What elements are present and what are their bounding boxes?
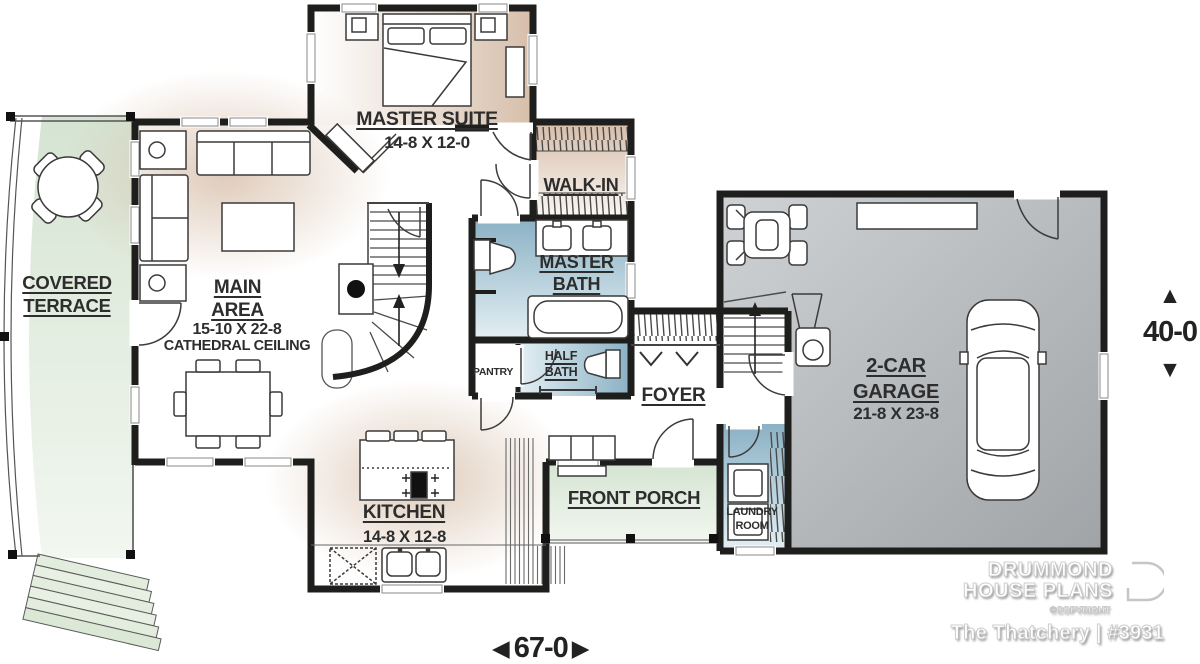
arrow-left-icon: ◀ — [492, 637, 510, 660]
room-label-front-porch: FRONT PORCH — [560, 487, 708, 510]
arrow-down-icon: ▼ — [1159, 358, 1182, 381]
closet-bifold-chevrons — [640, 352, 698, 365]
double-vanity — [536, 220, 628, 256]
room-label-master-suite: MASTER SUITE — [352, 108, 502, 132]
foyer-closet-rod — [633, 313, 718, 341]
sofa — [197, 131, 310, 175]
walkin-door — [496, 164, 530, 198]
depth-dimension: ▲ 40-0 ▼ — [1140, 284, 1200, 381]
dining-set — [174, 360, 282, 448]
workbench — [857, 203, 977, 229]
brand-name-line2: HOUSE PLANS — [963, 581, 1113, 602]
master-bath-door — [481, 180, 518, 216]
room-dims-master-suite: 14-8 X 12-0 — [372, 133, 482, 154]
nightstand-left — [346, 14, 378, 40]
plan-title: The Thatchery | #3931 — [942, 622, 1164, 645]
fireplace — [339, 264, 373, 314]
bed — [383, 14, 471, 106]
walkin-rod-top — [535, 127, 629, 151]
room-label-foyer: FOYER — [636, 384, 711, 407]
room-label-pantry: PANTRY — [470, 366, 516, 379]
bathtub — [528, 296, 628, 338]
kitchen-island — [360, 431, 454, 500]
room-label-kitchen: KITCHEN — [358, 501, 450, 524]
floor-plan: COVERED TERRACE MASTER SUITE 14-8 X 12-0… — [0, 0, 1200, 664]
brand-logo-icon — [1120, 558, 1164, 604]
brand-copyright: ©COPYRIGHT — [942, 605, 1164, 615]
width-dimension: ◀ 67-0 ▶ — [492, 632, 589, 664]
room-label-walk-in: WALK-IN — [532, 175, 630, 197]
room-dims-main-area: 15-10 X 22-8 — [172, 320, 302, 340]
foyer-bench — [549, 436, 615, 476]
washer — [728, 464, 768, 502]
arrow-up-icon: ▲ — [1159, 284, 1182, 307]
arrow-right-icon: ▶ — [572, 637, 590, 660]
room-label-master-bath: MASTER BATH — [530, 252, 623, 296]
side-table-lamp-top — [140, 131, 186, 169]
front-door — [653, 419, 693, 460]
room-label-half-bath: HALF BATH — [537, 348, 585, 381]
kitchen-sink — [382, 548, 446, 582]
nightstand-right — [475, 14, 507, 40]
room-dims-garage: 21-8 X 23-8 — [840, 404, 952, 425]
room-label-garage: 2-CAR GARAGE — [852, 354, 940, 405]
side-table-lamp-bottom — [140, 265, 186, 301]
kitchen-stripe-band — [505, 438, 535, 546]
kitchen-stripe-band2 — [505, 546, 567, 584]
car — [960, 300, 1046, 500]
branding: DRUMMOND HOUSE PLANS ©COPYRIGHT The That… — [942, 558, 1164, 645]
width-value: 67-0 — [514, 632, 568, 664]
room-dims-kitchen: 14-8 X 12-8 — [352, 527, 457, 547]
coffee-table — [222, 203, 294, 251]
terrace-steps — [23, 554, 174, 651]
brand-name-line1: DRUMMOND — [963, 560, 1113, 581]
cooktop — [411, 472, 427, 498]
dresser — [506, 47, 524, 97]
depth-value: 40-0 — [1143, 316, 1197, 349]
loveseat — [140, 175, 188, 261]
room-label-covered-terrace: COVERED TERRACE — [14, 272, 120, 317]
room-label-main-area: MAIN AREA — [200, 276, 275, 322]
bedroom-hall-door — [493, 132, 531, 160]
room-note-main-area: CATHEDRAL CEILING — [148, 338, 326, 356]
room-label-laundry-room: LAUNDRY ROOM — [720, 505, 784, 534]
